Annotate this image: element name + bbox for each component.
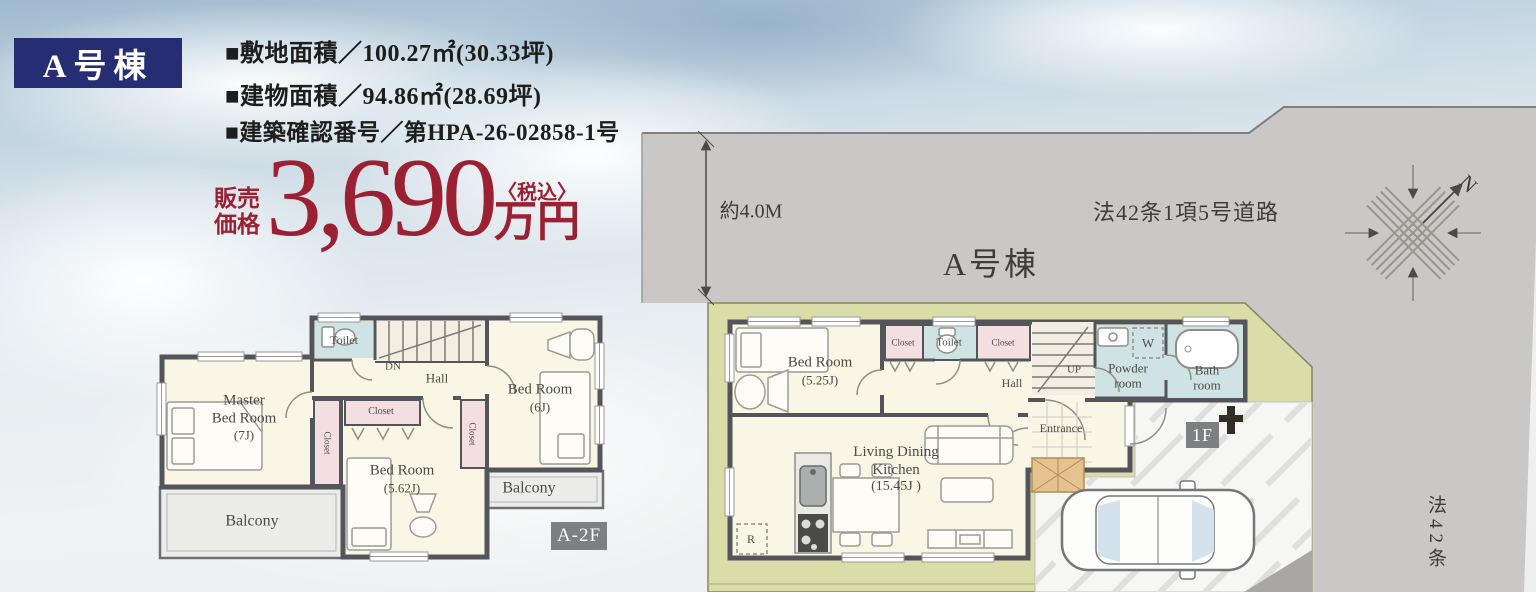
stairs-dn-label: DN <box>385 361 401 374</box>
floor-tag-2f: A-2F <box>551 522 607 550</box>
room-label-ldk: Living Dining Kitchen (15.45J ) <box>853 444 938 496</box>
closet-label-6j: Closet <box>467 422 478 445</box>
room-label-line: Bath <box>1193 363 1220 378</box>
road-name-label: 法42条1項5号道路 <box>1093 195 1279 227</box>
room-label-bed525: Bed Room (5.25J) <box>788 354 853 387</box>
room-label-line: Master <box>212 393 277 411</box>
room-label-line: Powder <box>1108 361 1148 376</box>
room-label-line: Bed Room <box>212 410 277 428</box>
side-road-label: 法42条 <box>1422 495 1449 572</box>
room-label-line: room <box>1193 378 1220 393</box>
room-label-hall-1f: Hall <box>1002 376 1023 390</box>
room-label-toilet-2f: Toilet <box>330 333 358 347</box>
price-label-line2: 価格 <box>214 212 260 238</box>
building-badge: A号棟 <box>14 38 182 88</box>
closet-label-1f-b: Closet <box>991 338 1014 349</box>
closet-label-master: Closet <box>322 431 333 454</box>
price-label-line1: 販売 <box>214 186 260 212</box>
spec-land-area: ■敷地面積／100.27㎡(30.33坪) <box>225 33 554 68</box>
fridge-label: R <box>747 532 755 546</box>
room-label-line: (15.45J ) <box>853 479 938 496</box>
room-label-line: room <box>1108 376 1148 391</box>
site-building-label: A号棟 <box>943 239 1039 285</box>
balcony-right-label: Balcony <box>502 480 555 499</box>
washbasin-icon <box>1098 328 1128 346</box>
room-label-line: Living Dining <box>853 444 938 462</box>
price-label: 販売 価格 <box>214 186 260 238</box>
kitchen-icon <box>795 453 831 553</box>
flyer-canvas: A号棟 ■敷地面積／100.27㎡(30.33坪) ■建物面積／94.86㎡(2… <box>0 0 1536 592</box>
room-label-hall-2f: Hall <box>426 370 448 385</box>
balcony-left-label: Balcony <box>225 513 278 532</box>
room-label-bath: Bath room <box>1193 363 1220 394</box>
room-label-powder: Powder room <box>1108 361 1148 392</box>
room-label-line: (6J) <box>508 399 573 414</box>
room-label-bed562: Bed Room (5.62J) <box>370 462 435 495</box>
room-label-toilet-1f: Toilet <box>936 337 962 350</box>
road-width-label: 約4.0M <box>720 195 783 224</box>
price-amount: 3,690 <box>266 148 493 249</box>
washer-label: W <box>1142 335 1154 350</box>
room-label-master: Master Bed Room (7J) <box>212 393 277 444</box>
stairs-2f <box>375 321 487 362</box>
room-label-line: Bed Room <box>508 381 573 399</box>
spec-building-area: ■建物面積／94.86㎡(28.69坪) <box>225 76 541 111</box>
price-unit: 万円 <box>494 201 580 244</box>
car-icon <box>1062 481 1254 579</box>
closet-label-top: Closet <box>368 406 394 418</box>
room-label-line: Bed Room <box>788 354 853 372</box>
room-label-bed6: Bed Room (6J) <box>508 381 573 414</box>
room-label-line: (5.25J) <box>788 372 853 387</box>
room-label-line: (5.62J) <box>370 480 435 495</box>
porch-deck <box>1032 458 1084 492</box>
stairs-up-label: UP <box>1067 364 1081 377</box>
entrance-label: Entrance <box>1040 421 1083 435</box>
stairs-1f <box>1032 322 1095 395</box>
room-label-line: Bed Room <box>370 462 435 480</box>
closet-label-1f-a: Closet <box>891 338 914 349</box>
floor-tag-1f: 1F <box>1186 422 1219 448</box>
room-label-line: (7J) <box>212 428 277 443</box>
room-label-line: Kitchen <box>853 462 938 480</box>
